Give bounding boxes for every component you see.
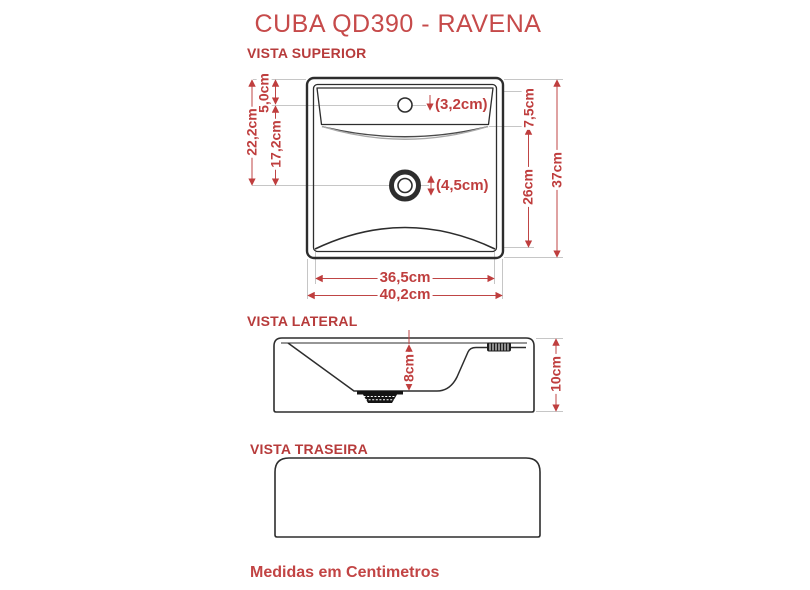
dim-total-height: 10cm	[549, 354, 564, 394]
back-view-drawing	[275, 458, 540, 537]
dim-drain-hole: (4,5cm)	[436, 178, 489, 194]
side-faucet-hole-block	[487, 343, 511, 352]
basin-back-curve-upper	[322, 127, 488, 137]
top-view-extension-lines	[252, 80, 563, 300]
page-title: CUBA QD390 - RAVENA	[0, 10, 796, 39]
faucet-hole	[398, 98, 412, 112]
dim-bowl-depth: 8cm	[402, 352, 417, 384]
top-view-label: VISTA SUPERIOR	[247, 45, 366, 61]
back-view-label: VISTA TRASEIRA	[250, 441, 368, 457]
dim-bottom-outer: 40,2cm	[378, 287, 433, 303]
side-view-label: VISTA LATERAL	[247, 313, 357, 329]
back-outline	[275, 458, 540, 537]
dim-left-mid: 17,2cm	[269, 118, 284, 169]
drain-hole-inner	[398, 179, 412, 193]
dim-right-mid: 26cm	[521, 167, 536, 207]
units-note: Medidas em Centimetros	[250, 564, 439, 582]
dim-bottom-inner: 36,5cm	[378, 270, 433, 286]
dim-faucet-hole: (3,2cm)	[435, 97, 488, 113]
basin-front-curve	[315, 228, 495, 250]
dim-right-top: 7,5cm	[522, 86, 537, 130]
drain-hole-ring	[392, 172, 419, 199]
dim-left-top: 5,0cm	[257, 71, 272, 115]
dim-right-total: 37cm	[550, 150, 565, 190]
diagram-page: CUBA QD390 - RAVENA VISTA SUPERIOR VISTA…	[0, 0, 810, 590]
